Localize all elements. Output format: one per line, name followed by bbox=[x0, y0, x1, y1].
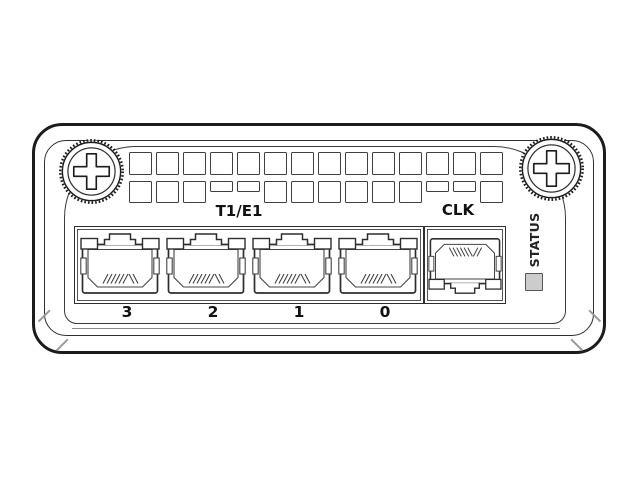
vent-cell bbox=[210, 181, 233, 192]
rj45-port-0-icon bbox=[338, 231, 418, 295]
t1e1-group-label: T1/E1 bbox=[189, 202, 289, 220]
port-label-0: 0 bbox=[365, 303, 405, 321]
port-label-2: 2 bbox=[193, 303, 233, 321]
vent-cell bbox=[237, 152, 260, 175]
vent-cell bbox=[426, 181, 449, 192]
vent-grid bbox=[129, 152, 503, 203]
left-thumbscrew-icon bbox=[57, 137, 126, 206]
vent-cell bbox=[129, 181, 152, 203]
vent-cell bbox=[264, 181, 287, 203]
rj45-port-1-icon bbox=[252, 231, 332, 295]
t1e1-module-drawing: T1/E1 CLK 3 2 1 0 STATUS bbox=[0, 0, 640, 480]
vent-cell bbox=[318, 152, 341, 175]
vent-cell bbox=[318, 181, 341, 203]
right-thumbscrew-icon bbox=[517, 134, 586, 203]
vent-cell bbox=[345, 181, 368, 203]
vent-cell bbox=[345, 152, 368, 175]
rj45-port-3-icon bbox=[80, 231, 160, 295]
vent-cell bbox=[453, 152, 476, 175]
vent-cell bbox=[264, 152, 287, 175]
vent-cell bbox=[399, 152, 422, 175]
vent-cell bbox=[237, 181, 260, 192]
vent-cell bbox=[480, 152, 503, 175]
vent-cell bbox=[372, 181, 395, 203]
vent-cell bbox=[156, 181, 179, 203]
vent-cell bbox=[426, 152, 449, 175]
port-label-1: 1 bbox=[279, 303, 319, 321]
port-label-3: 3 bbox=[107, 303, 147, 321]
vent-cell bbox=[183, 181, 206, 203]
vent-cell bbox=[480, 181, 503, 203]
vent-cell bbox=[156, 152, 179, 175]
vent-cell bbox=[129, 152, 152, 175]
status-label: STATUS bbox=[527, 205, 543, 275]
status-led bbox=[525, 273, 543, 291]
vent-cell bbox=[210, 152, 233, 175]
vent-cell bbox=[399, 181, 422, 203]
vent-cell bbox=[291, 152, 314, 175]
vent-cell bbox=[183, 152, 206, 175]
rj45-port-2-icon bbox=[166, 231, 246, 295]
clk-port-label: CLK bbox=[408, 201, 508, 219]
vent-cell bbox=[372, 152, 395, 175]
vent-cell bbox=[453, 181, 476, 192]
clk-rj45-jack-icon bbox=[428, 237, 502, 296]
vent-cell bbox=[291, 181, 314, 203]
faceplate-bottom-bevel-line bbox=[72, 328, 560, 329]
